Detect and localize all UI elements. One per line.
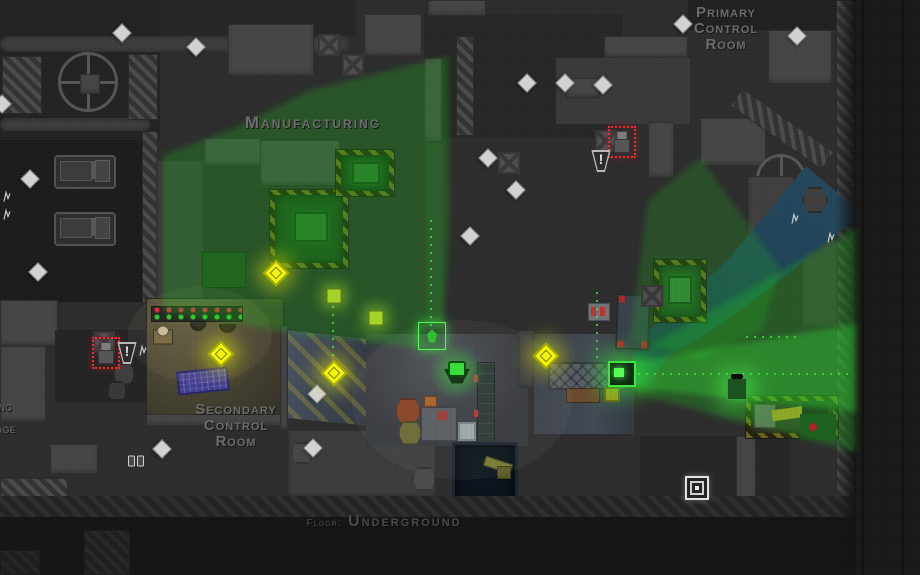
- objective-marker[interactable]: [418, 322, 446, 350]
- enemy-unit[interactable]: [92, 337, 120, 369]
- player-character[interactable]: [439, 354, 475, 390]
- map-marker-glyph: [826, 231, 836, 250]
- floor-label-name: Underground: [348, 513, 462, 530]
- door-icon: [127, 456, 145, 467]
- safe-icon[interactable]: [685, 476, 709, 500]
- label-fragment-top: ing: [0, 399, 32, 414]
- highlighted-device[interactable]: [727, 378, 747, 400]
- label-fragment-bottom: age: [0, 421, 32, 436]
- parked-truck: [54, 212, 116, 246]
- floor-label: Floor:Underground: [254, 513, 514, 531]
- map-marker-glyph: [2, 190, 12, 209]
- security-camera[interactable]: [608, 361, 636, 387]
- map-marker-glyph: [138, 344, 148, 363]
- vision-cones-overlay: [0, 0, 920, 575]
- label-manufacturing: Manufacturing: [218, 114, 408, 132]
- parked-truck: [54, 155, 116, 189]
- enemy-unit[interactable]: [608, 126, 636, 158]
- crate: [318, 34, 340, 56]
- active-machine-light[interactable]: [369, 311, 384, 326]
- alert-indicator: !: [117, 342, 137, 364]
- guard-character[interactable]: [149, 320, 177, 348]
- alert-indicator: !: [591, 150, 611, 172]
- map-marker-glyph: [790, 212, 800, 231]
- crate: [641, 285, 663, 307]
- map-marker-glyph: [2, 208, 12, 227]
- label-secondary-control-room: Secondary Control Room: [168, 402, 304, 451]
- crate: [498, 152, 520, 174]
- label-primary-control-room: Primary Control Room: [656, 5, 796, 54]
- game-map-view[interactable]: !! Primary Control Room Manufacturing Se…: [0, 0, 920, 575]
- vision-cone-left: [163, 56, 450, 350]
- active-machine-light[interactable]: [327, 289, 342, 304]
- crate: [342, 54, 364, 76]
- floor-label-prefix: Floor:: [306, 518, 342, 529]
